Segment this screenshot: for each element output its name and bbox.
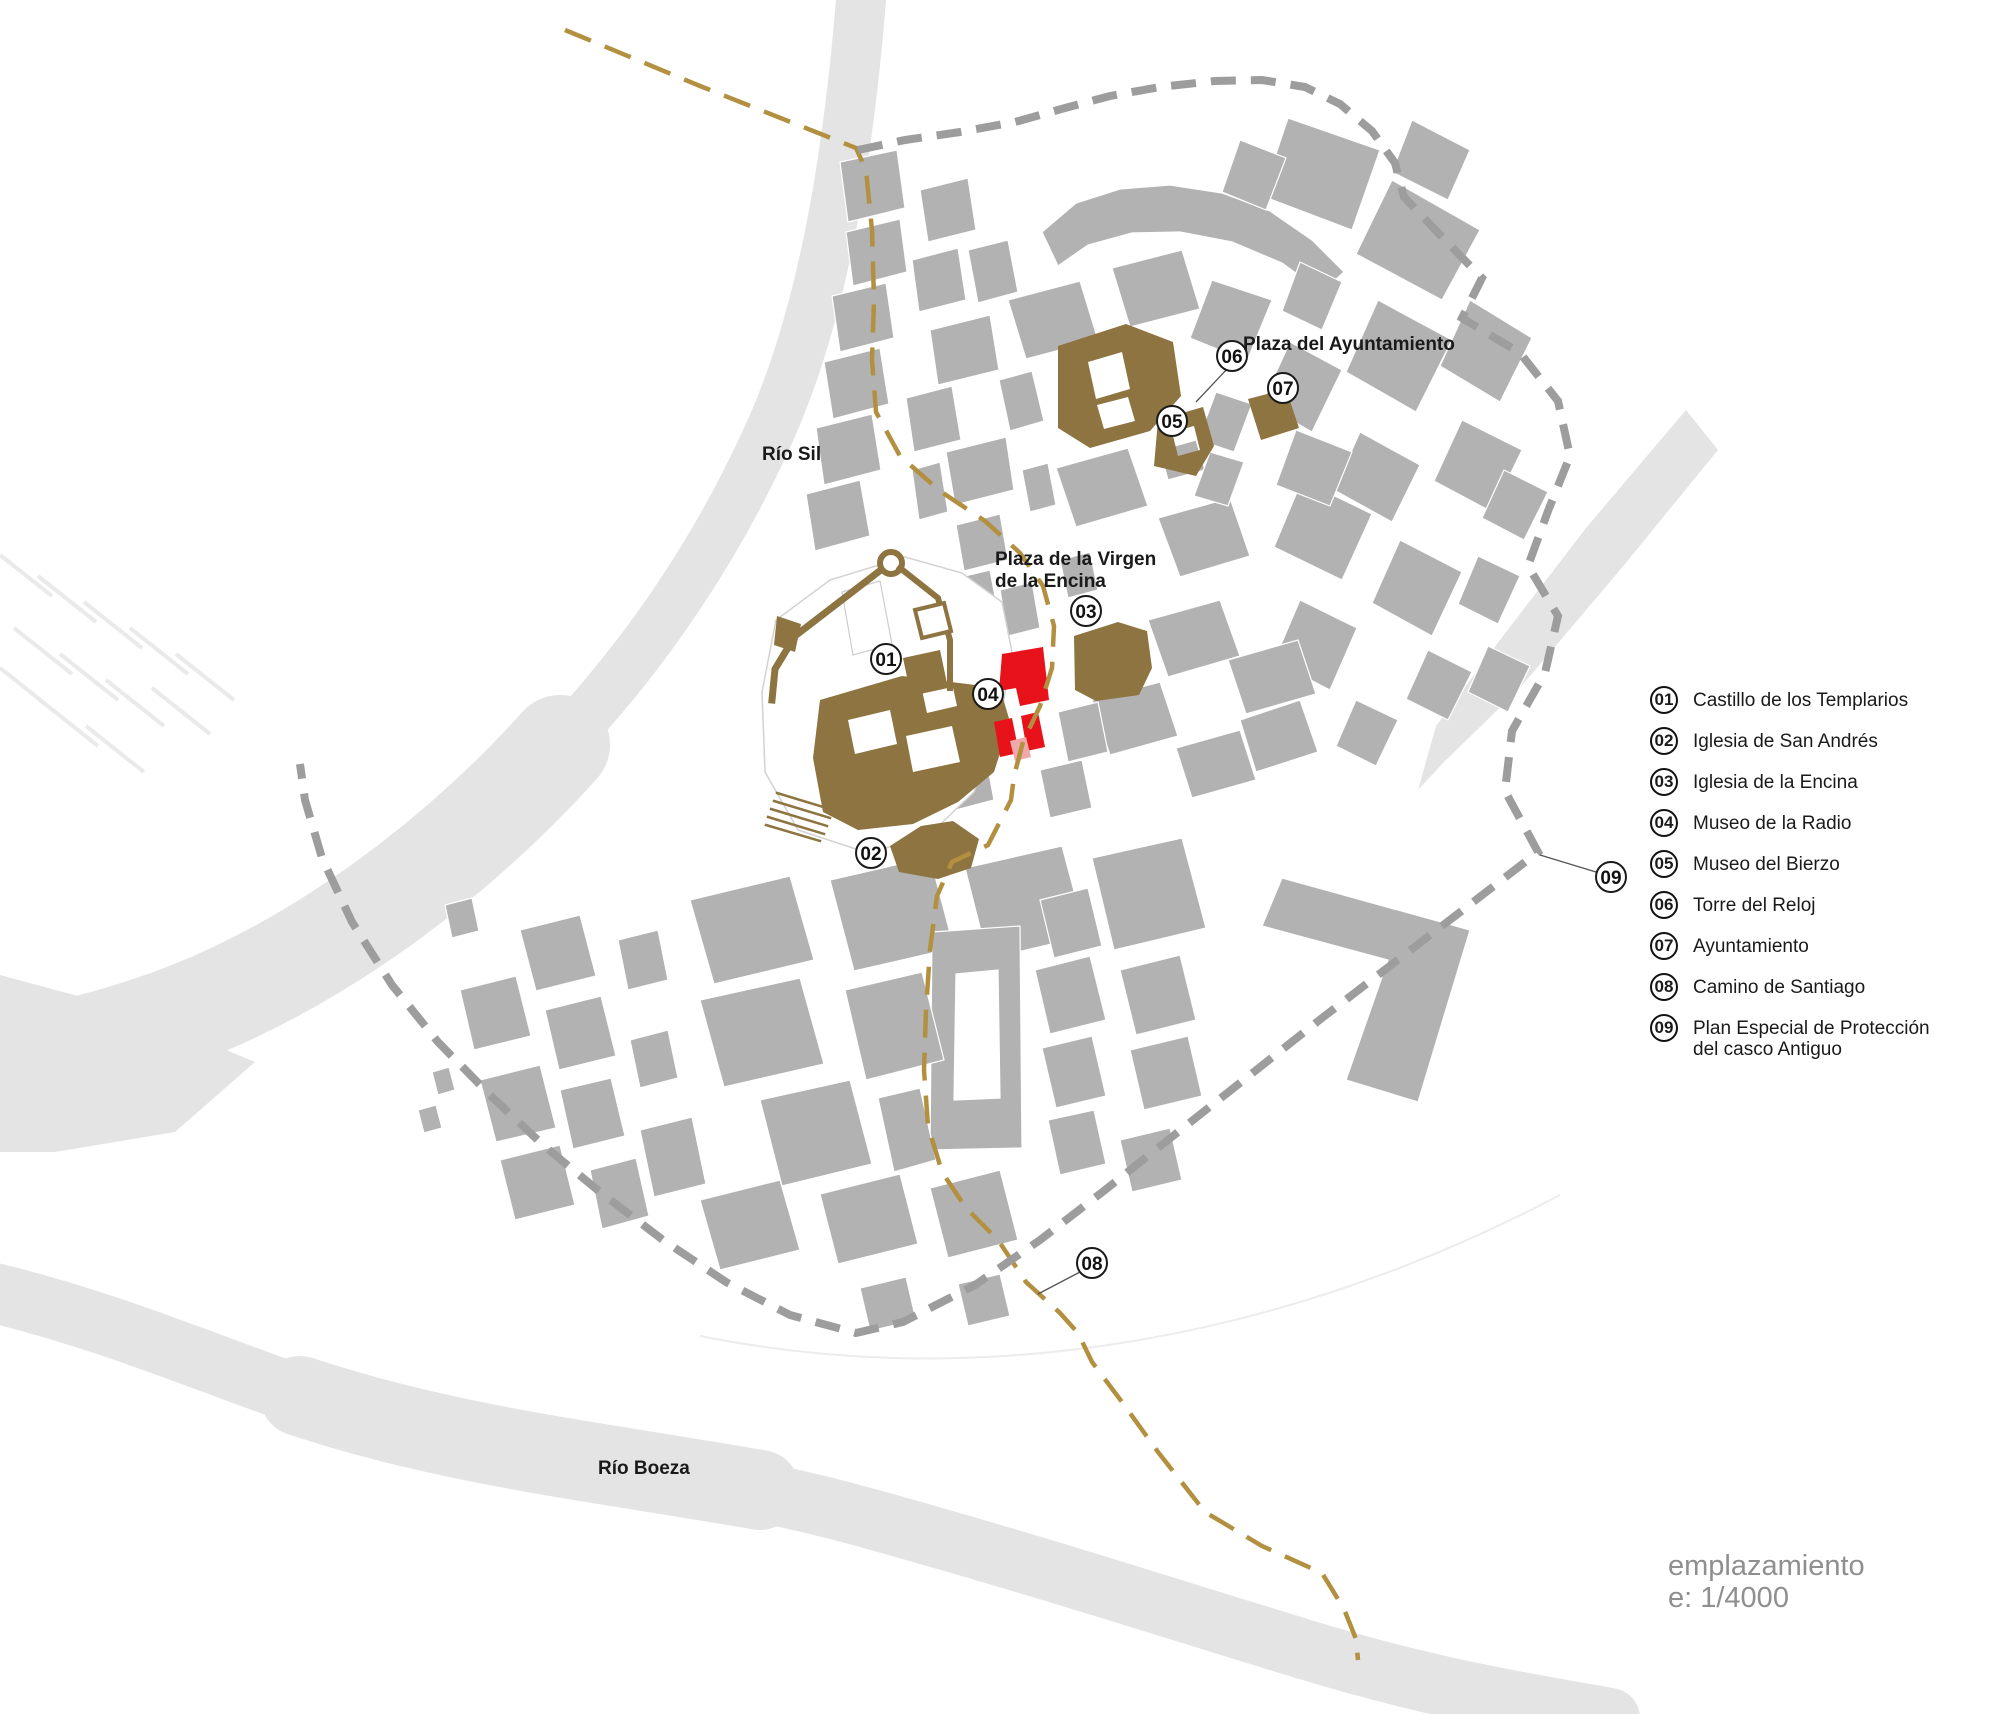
- rio-sil-label: Río Sil: [762, 444, 821, 466]
- legend-item-01: 01 Castillo de los Templarios: [1650, 686, 1930, 714]
- plaza-ayuntamiento-label: Plaza del Ayuntamiento: [1243, 334, 1455, 356]
- railway-hatch: [0, 555, 234, 772]
- drawing-scale: e: 1/4000: [1668, 1582, 1865, 1614]
- legend-badge-09: 09: [1650, 1014, 1678, 1042]
- rio-boeza-shape: [0, 1292, 1610, 1714]
- svg-text:02: 02: [860, 844, 881, 865]
- svg-text:01: 01: [875, 650, 897, 671]
- map-marker-04: 04: [973, 679, 1003, 709]
- marker-08-leader: [1038, 1272, 1080, 1294]
- svg-text:03: 03: [1075, 602, 1096, 623]
- map-marker-03: 03: [1071, 596, 1101, 626]
- map-marker-08: 08: [1077, 1248, 1107, 1278]
- legend-badge-01: 01: [1650, 686, 1678, 714]
- legend-label-04: Museo de la Radio: [1693, 809, 1851, 834]
- legend-label-01: Castillo de los Templarios: [1693, 686, 1908, 711]
- legend-item-03: 03 Iglesia de la Encina: [1650, 768, 1930, 796]
- legend: 01 Castillo de los Templarios 02 Iglesia…: [1650, 686, 1930, 1073]
- legend-label-03: Iglesia de la Encina: [1693, 768, 1858, 793]
- svg-text:07: 07: [1272, 379, 1293, 400]
- map-marker-07: 07: [1268, 373, 1298, 403]
- legend-item-08: 08 Camino de Santiago: [1650, 973, 1930, 1001]
- legend-label-06: Torre del Reloj: [1693, 891, 1816, 916]
- map-marker-02: 02: [856, 838, 886, 868]
- legend-label-02: Iglesia de San Andrés: [1693, 727, 1878, 752]
- legend-item-02: 02 Iglesia de San Andrés: [1650, 727, 1930, 755]
- legend-badge-06: 06: [1650, 891, 1678, 919]
- legend-item-06: 06 Torre del Reloj: [1650, 891, 1930, 919]
- scale-block: emplazamiento e: 1/4000: [1668, 1550, 1865, 1614]
- iglesia-encina-shape: [1074, 622, 1152, 701]
- legend-badge-05: 05: [1650, 850, 1678, 878]
- legend-item-04: 04 Museo de la Radio: [1650, 809, 1930, 837]
- map-marker-09: 09: [1596, 862, 1626, 892]
- svg-text:08: 08: [1081, 1254, 1102, 1275]
- marker-09-leader: [1540, 855, 1596, 872]
- map-marker-05: 05: [1157, 406, 1187, 436]
- plaza-virgen-line1: Plaza de la Virgen: [995, 549, 1156, 571]
- map-marker-01: 01: [871, 644, 901, 674]
- legend-label-08: Camino de Santiago: [1693, 973, 1865, 998]
- drawing-title: emplazamiento: [1668, 1550, 1865, 1582]
- legend-label-07: Ayuntamiento: [1693, 932, 1809, 957]
- svg-text:04: 04: [977, 685, 999, 706]
- legend-item-05: 05 Museo del Bierzo: [1650, 850, 1930, 878]
- legend-badge-03: 03: [1650, 768, 1678, 796]
- legend-label-09-line1: Plan Especial de Protección: [1693, 1018, 1930, 1039]
- svg-text:09: 09: [1600, 868, 1621, 889]
- svg-text:06: 06: [1221, 347, 1242, 368]
- legend-item-09: 09 Plan Especial de Protección del casco…: [1650, 1014, 1930, 1060]
- legend-badge-04: 04: [1650, 809, 1678, 837]
- legend-badge-07: 07: [1650, 932, 1678, 960]
- legend-label-09: Plan Especial de Protección del casco An…: [1693, 1014, 1930, 1060]
- legend-item-07: 07 Ayuntamiento: [1650, 932, 1930, 960]
- rio-boeza-label: Río Boeza: [598, 1458, 690, 1480]
- legend-badge-02: 02: [1650, 727, 1678, 755]
- legend-label-05: Museo del Bierzo: [1693, 850, 1840, 875]
- svg-text:05: 05: [1161, 412, 1183, 433]
- plaza-virgen-encina-label: Plaza de la Virgen de la Encina: [995, 549, 1156, 593]
- legend-badge-08: 08: [1650, 973, 1678, 1001]
- legend-label-09-line2: del casco Antiguo: [1693, 1039, 1930, 1060]
- site-plan-map: 01 02 03 04 05 06 07 08 09 Río Sil Río B…: [0, 0, 2000, 1714]
- plaza-virgen-line2: de la Encina: [995, 571, 1156, 593]
